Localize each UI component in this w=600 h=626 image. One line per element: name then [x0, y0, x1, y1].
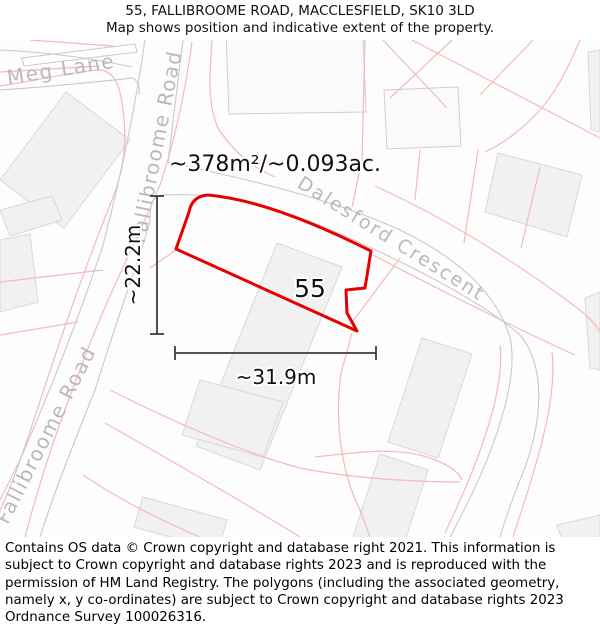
property-address-title: 55, FALLIBROOME ROAD, MACCLESFIELD, SK10…: [0, 3, 600, 20]
building-footprint: [352, 454, 428, 537]
copyright-text: Contains OS data © Crown copyright and d…: [5, 541, 564, 625]
building-footprint: [134, 497, 227, 537]
parcel-line: [485, 40, 580, 152]
parcel-line: [150, 250, 176, 268]
copyright-footer: Contains OS data © Crown copyright and d…: [0, 537, 600, 626]
map-description-subtitle: Map shows position and indicative extent…: [0, 20, 600, 37]
plot-number-label: 55: [294, 274, 326, 303]
building-footprint: [557, 515, 600, 537]
building-footprint: [588, 50, 600, 132]
building-footprint: [384, 87, 461, 149]
parcel-line: [30, 40, 113, 46]
map-header: 55, FALLIBROOME ROAD, MACCLESFIELD, SK10…: [0, 0, 600, 40]
map-canvas: Meg Lane Fallibroome Road Fallibroome Ro…: [0, 40, 600, 537]
parcel-line: [350, 258, 400, 325]
parcel-line: [373, 255, 575, 355]
building-footprint: [226, 40, 366, 114]
height-dimension-label: ~22.2m: [121, 225, 145, 306]
parcel-line: [0, 322, 78, 335]
property-map: Meg Lane Fallibroome Road Fallibroome Ro…: [0, 40, 600, 537]
parcel-line: [415, 150, 420, 200]
building-footprint: [0, 196, 62, 236]
width-dimension-label: ~31.9m: [236, 365, 317, 389]
parcel-line: [480, 40, 533, 95]
parcel-line: [464, 150, 478, 243]
building-footprint: [585, 292, 600, 370]
area-label: ~378m²/~0.093ac.: [169, 152, 381, 177]
building-footprint: [388, 338, 472, 458]
road-line-dalesford: [150, 195, 539, 537]
parcel-line: [513, 352, 553, 537]
building-footprint: [0, 234, 38, 312]
